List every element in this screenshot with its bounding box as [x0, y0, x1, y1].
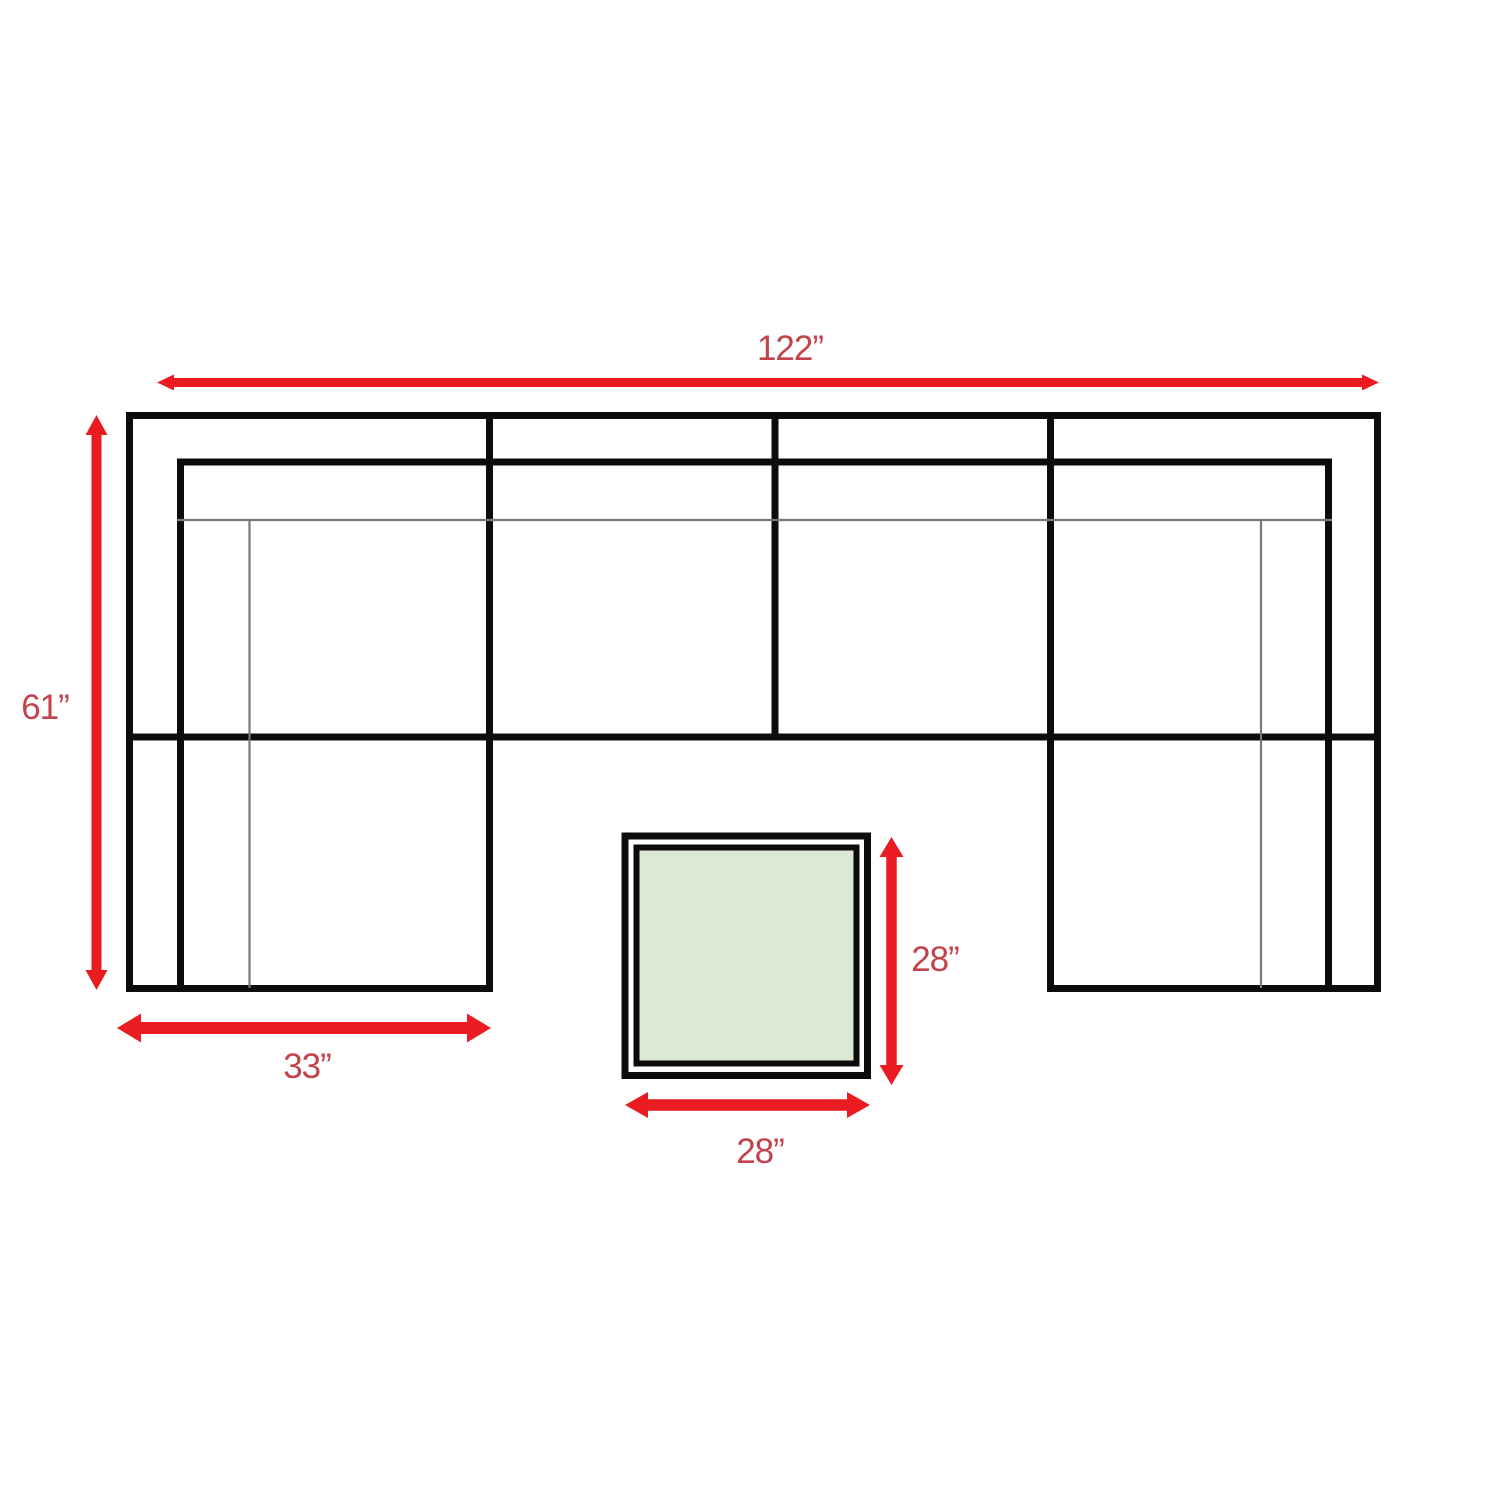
svg-text:28”: 28” [736, 1132, 784, 1171]
svg-text:33”: 33” [283, 1047, 331, 1086]
svg-text:28”: 28” [911, 940, 959, 979]
svg-text:61”: 61” [21, 688, 69, 727]
svg-text:122”: 122” [757, 329, 823, 368]
